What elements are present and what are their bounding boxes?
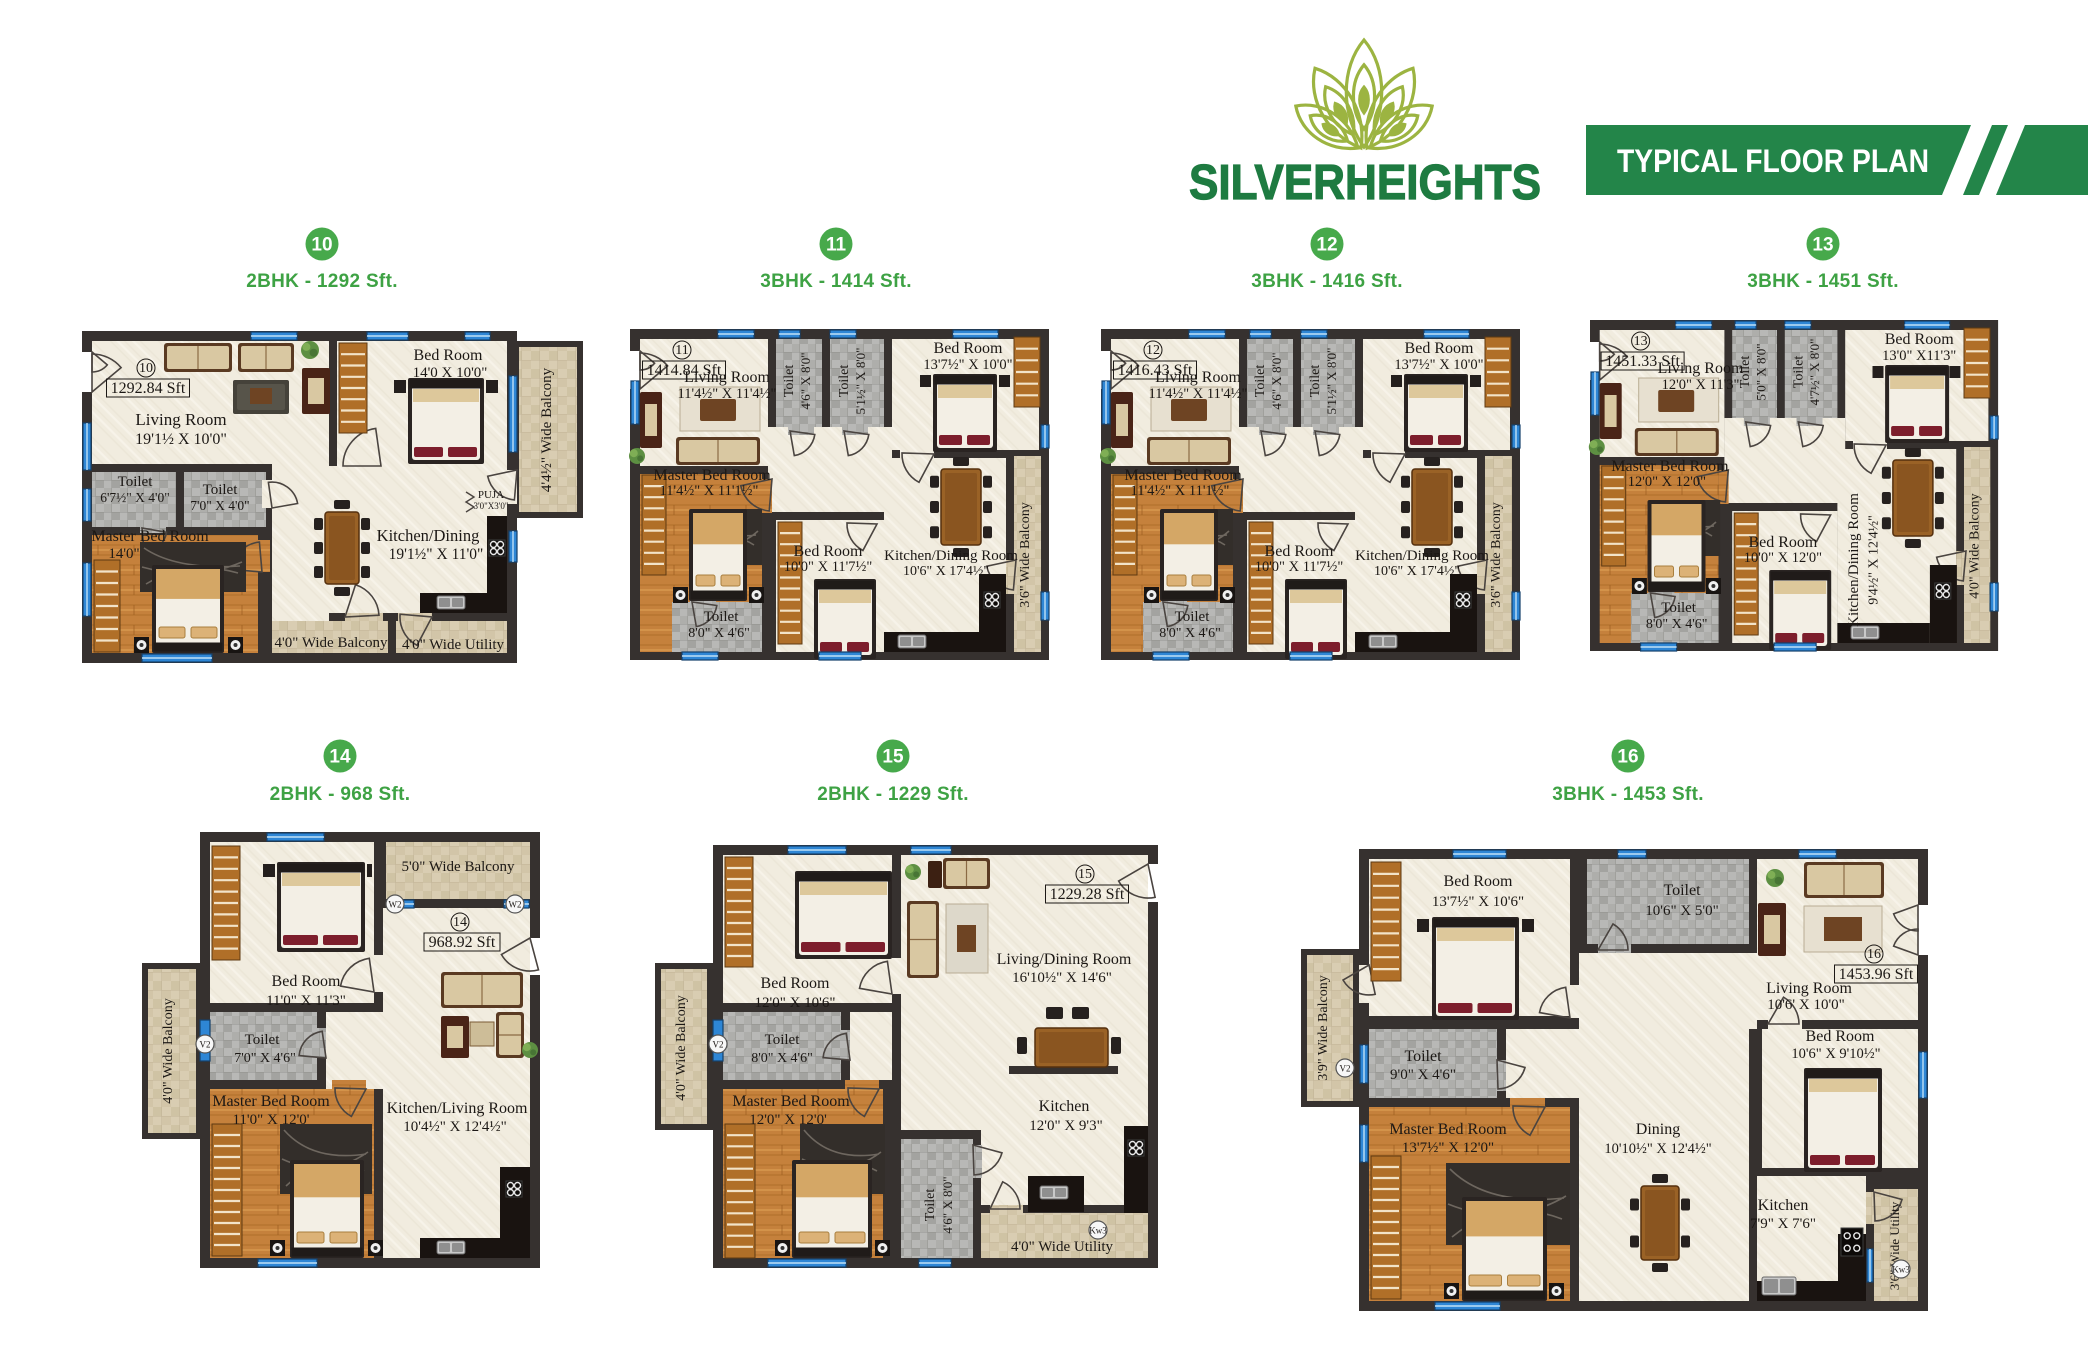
svg-text:Master Bed Room: Master Bed Room bbox=[1389, 1121, 1507, 1138]
svg-text:9'4½" X 12'4½": 9'4½" X 12'4½" bbox=[1866, 515, 1881, 605]
svg-text:Bed Room: Bed Room bbox=[934, 340, 1003, 357]
svg-text:13'7½" X 12'0": 13'7½" X 12'0" bbox=[1402, 1140, 1494, 1156]
svg-text:Toilet: Toilet bbox=[1663, 882, 1701, 899]
svg-text:15: 15 bbox=[882, 747, 904, 768]
svg-text:13: 13 bbox=[1634, 334, 1648, 349]
svg-text:3'6" Wide Balcony: 3'6" Wide Balcony bbox=[1489, 502, 1504, 607]
svg-text:2BHK - 1229 Sft.: 2BHK - 1229 Sft. bbox=[817, 784, 969, 805]
svg-text:Master Bed Room: Master Bed Room bbox=[212, 1093, 330, 1110]
svg-text:1229.28 Sft: 1229.28 Sft bbox=[1050, 886, 1125, 903]
svg-text:Toilet: Toilet bbox=[203, 482, 239, 498]
svg-text:14'0": 14'0" bbox=[108, 546, 139, 562]
svg-text:3BHK - 1416 Sft.: 3BHK - 1416 Sft. bbox=[1251, 271, 1403, 292]
svg-text:Master Bed Room: Master Bed Room bbox=[732, 1093, 850, 1110]
svg-text:Toilet: Toilet bbox=[118, 474, 154, 490]
svg-text:11'4½" X 11'1½": 11'4½" X 11'1½" bbox=[1131, 483, 1230, 499]
svg-text:4'0" Wide Balcony: 4'0" Wide Balcony bbox=[674, 995, 689, 1100]
svg-text:Toilet: Toilet bbox=[923, 1189, 938, 1222]
svg-text:Bed Room: Bed Room bbox=[1444, 873, 1513, 890]
svg-text:Living Room: Living Room bbox=[1658, 360, 1744, 377]
svg-text:10'10½" X 12'4½": 10'10½" X 12'4½" bbox=[1604, 1141, 1711, 1157]
svg-text:W2: W2 bbox=[389, 900, 402, 910]
svg-text:10'6" X 17'4½": 10'6" X 17'4½" bbox=[1374, 564, 1460, 579]
svg-text:Living Room: Living Room bbox=[135, 410, 226, 429]
svg-text:Toilet: Toilet bbox=[704, 609, 740, 625]
svg-text:6'7½" X 4'0": 6'7½" X 4'0" bbox=[100, 490, 170, 505]
svg-text:V2: V2 bbox=[713, 1040, 724, 1050]
svg-text:12: 12 bbox=[1316, 235, 1337, 256]
svg-text:10'6" X 9'10½": 10'6" X 9'10½" bbox=[1791, 1046, 1880, 1062]
svg-text:Kitchen/Living Room: Kitchen/Living Room bbox=[387, 1100, 528, 1117]
svg-text:Dining: Dining bbox=[1636, 1121, 1680, 1138]
svg-text:7'9" X 7'6": 7'9" X 7'6" bbox=[1750, 1216, 1816, 1232]
svg-text:Toilet: Toilet bbox=[837, 365, 852, 398]
svg-text:19'1½" X 11'0": 19'1½" X 11'0" bbox=[389, 546, 484, 563]
svg-text:10'0" X 11'7½": 10'0" X 11'7½" bbox=[1255, 559, 1344, 575]
svg-text:4'0" Wide Utility: 4'0" Wide Utility bbox=[402, 637, 505, 653]
svg-text:PUJA: PUJA bbox=[478, 489, 504, 501]
svg-text:Toilet: Toilet bbox=[1253, 365, 1268, 398]
svg-text:11'4½" X 11'4½": 11'4½" X 11'4½" bbox=[1149, 386, 1248, 402]
svg-text:10'6" X 5'0": 10'6" X 5'0" bbox=[1645, 903, 1718, 919]
svg-text:1292.84 Sft: 1292.84 Sft bbox=[111, 380, 186, 397]
svg-text:12: 12 bbox=[1146, 343, 1160, 358]
svg-text:3'0"X3'0": 3'0"X3'0" bbox=[473, 501, 508, 511]
svg-text:Kitchen/Dining Room: Kitchen/Dining Room bbox=[884, 548, 1018, 564]
svg-text:Kitchen/Dining Room: Kitchen/Dining Room bbox=[1846, 493, 1862, 627]
svg-text:13'7½" X 10'0": 13'7½" X 10'0" bbox=[1394, 357, 1483, 373]
svg-text:7'0" X 4'0": 7'0" X 4'0" bbox=[190, 498, 249, 513]
svg-text:5'1½" X 8'0": 5'1½" X 8'0" bbox=[1324, 348, 1339, 415]
svg-text:Toilet: Toilet bbox=[1791, 356, 1806, 389]
svg-text:4'6" X 8'0": 4'6" X 8'0" bbox=[1269, 352, 1284, 409]
svg-text:8'0" X 4'6": 8'0" X 4'6" bbox=[751, 1051, 813, 1066]
svg-text:Kitchen/Dining Room: Kitchen/Dining Room bbox=[1355, 548, 1489, 564]
svg-text:4'7½" X 8'0": 4'7½" X 8'0" bbox=[1807, 339, 1822, 406]
svg-text:5'0" X 8'0": 5'0" X 8'0" bbox=[1753, 343, 1768, 400]
svg-text:10'6" X 17'4½": 10'6" X 17'4½" bbox=[903, 564, 989, 579]
svg-text:Master Bed Room: Master Bed Room bbox=[653, 467, 771, 484]
svg-text:16'10½" X 14'6": 16'10½" X 14'6" bbox=[1012, 970, 1112, 986]
svg-text:10: 10 bbox=[311, 235, 332, 256]
svg-text:Bed Room: Bed Room bbox=[272, 973, 341, 990]
svg-text:10'4½" X 12'4½": 10'4½" X 12'4½" bbox=[403, 1119, 506, 1135]
svg-text:13: 13 bbox=[1812, 235, 1833, 256]
svg-text:12'0" X 9'3": 12'0" X 9'3" bbox=[1029, 1118, 1102, 1134]
svg-text:968.92 Sft: 968.92 Sft bbox=[429, 934, 496, 951]
svg-text:Toilet: Toilet bbox=[1404, 1048, 1442, 1065]
svg-text:7'0" X 4'6": 7'0" X 4'6" bbox=[234, 1051, 296, 1066]
svg-text:V2: V2 bbox=[200, 1040, 211, 1050]
svg-text:Bed Room: Bed Room bbox=[1748, 534, 1817, 551]
svg-text:13'7½" X 10'0": 13'7½" X 10'0" bbox=[923, 357, 1012, 373]
svg-text:Kw3: Kw3 bbox=[1892, 1265, 1910, 1275]
svg-text:13'0" X11'3": 13'0" X11'3" bbox=[1882, 348, 1956, 364]
svg-text:Kitchen: Kitchen bbox=[1758, 1197, 1809, 1214]
svg-text:4'0" Wide Utility: 4'0" Wide Utility bbox=[1011, 1239, 1114, 1255]
svg-text:11: 11 bbox=[675, 343, 688, 358]
svg-text:Toilet: Toilet bbox=[1661, 600, 1697, 616]
svg-text:Toilet: Toilet bbox=[1175, 609, 1211, 625]
svg-text:11'0" X 12'0': 11'0" X 12'0' bbox=[232, 1112, 309, 1128]
svg-text:Toilet: Toilet bbox=[245, 1032, 281, 1048]
svg-text:5'1½" X 8'0": 5'1½" X 8'0" bbox=[853, 348, 868, 415]
svg-text:2BHK - 1292 Sft.: 2BHK - 1292 Sft. bbox=[246, 271, 398, 292]
svg-text:4'4½" Wide Balcony: 4'4½" Wide Balcony bbox=[539, 367, 555, 492]
svg-text:11'0" X 11'3": 11'0" X 11'3" bbox=[266, 993, 346, 1009]
svg-text:Kw3: Kw3 bbox=[1089, 1226, 1107, 1236]
svg-text:16: 16 bbox=[1867, 947, 1881, 962]
svg-text:Toilet: Toilet bbox=[1308, 365, 1323, 398]
svg-text:11: 11 bbox=[826, 235, 847, 256]
svg-text:14'0 X 10'0": 14'0 X 10'0" bbox=[413, 365, 488, 381]
svg-text:15: 15 bbox=[1078, 867, 1092, 882]
svg-text:8'0" X 4'6": 8'0" X 4'6" bbox=[1159, 626, 1221, 641]
svg-text:Bed Room: Bed Room bbox=[1265, 543, 1334, 560]
svg-text:10'6' X 10'0": 10'6' X 10'0" bbox=[1767, 997, 1845, 1013]
svg-text:4'0" Wide Balcony: 4'0" Wide Balcony bbox=[161, 998, 176, 1103]
svg-text:3BHK - 1453 Sft.: 3BHK - 1453 Sft. bbox=[1552, 784, 1704, 805]
svg-text:Master Bed Room: Master Bed Room bbox=[91, 528, 209, 545]
svg-text:Toilet: Toilet bbox=[782, 365, 797, 398]
svg-text:10: 10 bbox=[139, 361, 153, 376]
svg-text:19'1½ X 10'0": 19'1½ X 10'0" bbox=[135, 431, 227, 448]
svg-text:12'0" X 12'0': 12'0" X 12'0' bbox=[749, 1112, 827, 1128]
svg-text:Bed Room: Bed Room bbox=[1885, 331, 1954, 348]
svg-text:10'0" X 12'0": 10'0" X 12'0" bbox=[1744, 550, 1822, 566]
svg-text:Toilet: Toilet bbox=[765, 1032, 801, 1048]
svg-text:Bed Room: Bed Room bbox=[1806, 1028, 1875, 1045]
svg-text:Bed Room: Bed Room bbox=[761, 975, 830, 992]
svg-text:W2: W2 bbox=[509, 900, 522, 910]
svg-text:Bed Room: Bed Room bbox=[414, 347, 483, 364]
svg-text:4'0" Wide Balcony: 4'0" Wide Balcony bbox=[275, 635, 388, 651]
svg-text:Living Room: Living Room bbox=[1155, 369, 1241, 386]
svg-text:4'0" Wide Balcony: 4'0" Wide Balcony bbox=[1968, 493, 1983, 598]
svg-text:V2: V2 bbox=[1340, 1064, 1351, 1074]
svg-text:3'9" Wide Balcony: 3'9" Wide Balcony bbox=[1316, 975, 1331, 1080]
svg-text:Kitchen: Kitchen bbox=[1039, 1098, 1090, 1115]
svg-text:Bed Room: Bed Room bbox=[794, 543, 863, 560]
svg-text:3'6" Wide Balcony: 3'6" Wide Balcony bbox=[1018, 502, 1033, 607]
svg-text:11'4½" X 11'4½": 11'4½" X 11'4½" bbox=[678, 386, 777, 402]
svg-text:5'0" Wide Balcony: 5'0" Wide Balcony bbox=[402, 859, 515, 875]
svg-text:13'7½" X 10'6": 13'7½" X 10'6" bbox=[1432, 894, 1524, 910]
svg-text:14: 14 bbox=[329, 747, 351, 768]
svg-text:12'0" X 11'3": 12'0" X 11'3" bbox=[1662, 377, 1740, 393]
svg-text:12'0" X 12'0": 12'0" X 12'0" bbox=[1628, 474, 1706, 490]
svg-text:4'6" X 8'0": 4'6" X 8'0" bbox=[798, 352, 813, 409]
svg-text:Living Room: Living Room bbox=[684, 369, 770, 386]
svg-text:8'0" X 4'6": 8'0" X 4'6" bbox=[1646, 617, 1708, 632]
svg-text:Master Bed Room: Master Bed Room bbox=[1611, 458, 1729, 475]
svg-text:Living/Dining Room: Living/Dining Room bbox=[997, 951, 1132, 968]
svg-text:3BHK - 1414 Sft.: 3BHK - 1414 Sft. bbox=[760, 271, 912, 292]
svg-text:Toilet: Toilet bbox=[1738, 356, 1753, 389]
svg-text:8'0" X 4'6": 8'0" X 4'6" bbox=[688, 626, 750, 641]
svg-text:TYPICAL FLOOR PLAN: TYPICAL FLOOR PLAN bbox=[1617, 143, 1929, 179]
svg-text:4'6" X 8'0": 4'6" X 8'0" bbox=[940, 1176, 955, 1233]
svg-text:14: 14 bbox=[453, 915, 467, 930]
svg-text:Kitchen/Dining: Kitchen/Dining bbox=[377, 526, 480, 545]
svg-text:16: 16 bbox=[1617, 747, 1638, 768]
svg-text:3BHK - 1451 Sft.: 3BHK - 1451 Sft. bbox=[1747, 271, 1899, 292]
svg-text:Living Room: Living Room bbox=[1766, 980, 1852, 997]
svg-text:SILVERHEIGHTS: SILVERHEIGHTS bbox=[1189, 156, 1541, 210]
svg-text:Master Bed Room: Master Bed Room bbox=[1124, 467, 1242, 484]
svg-text:2BHK - 968 Sft.: 2BHK - 968 Sft. bbox=[270, 784, 411, 805]
svg-text:10'0" X 11'7½": 10'0" X 11'7½" bbox=[784, 559, 873, 575]
svg-text:Bed Room: Bed Room bbox=[1405, 340, 1474, 357]
svg-text:12'0" X 10'6": 12'0" X 10'6" bbox=[755, 995, 836, 1011]
svg-text:11'4½" X 11'1½": 11'4½" X 11'1½" bbox=[660, 483, 759, 499]
svg-text:9'0" X 4'6": 9'0" X 4'6" bbox=[1390, 1067, 1456, 1083]
